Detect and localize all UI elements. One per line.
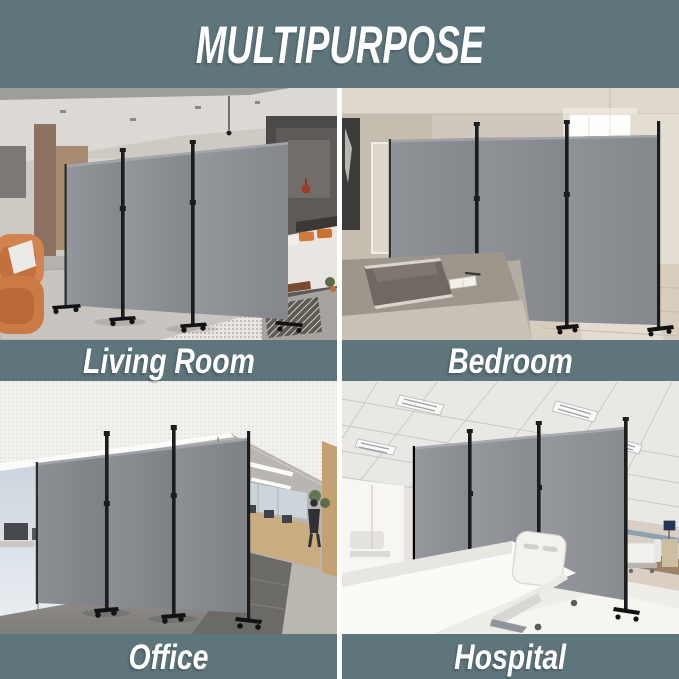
- office-photo: [0, 381, 337, 634]
- hospital-photo: [342, 381, 679, 634]
- label-bedroom: Bedroom: [448, 340, 573, 381]
- section-office: Office: [0, 381, 337, 679]
- section-hospital: Hospital: [337, 381, 679, 679]
- header-band: MULTIPURPOSE: [0, 0, 679, 88]
- product-collage: MULTIPURPOSE: [0, 0, 679, 679]
- plant: [325, 277, 335, 287]
- label-band-hospital: Hospital: [342, 634, 679, 679]
- red-vase: [302, 185, 311, 194]
- photo-grid: Living Room: [0, 88, 679, 679]
- section-living-room: Living Room: [0, 88, 337, 381]
- monitor: [664, 521, 675, 530]
- bed: [342, 252, 532, 340]
- label-band-office: Office: [0, 634, 337, 679]
- living-room-photo: [0, 88, 337, 340]
- room-divider: [52, 140, 303, 333]
- cabinet: [662, 539, 678, 567]
- label-band-bedroom: Bedroom: [342, 340, 679, 381]
- label-living-room: Living Room: [83, 340, 255, 381]
- bedroom-photo: [342, 88, 679, 340]
- orange-armchairs: [0, 234, 44, 334]
- page-title: MULTIPURPOSE: [195, 13, 484, 75]
- wood-wall: [322, 441, 337, 581]
- section-bedroom: Bedroom: [337, 88, 679, 381]
- label-hospital: Hospital: [455, 636, 567, 677]
- label-band-living-room: Living Room: [0, 340, 337, 381]
- wall-art: [342, 118, 360, 230]
- wall-panel: [0, 146, 26, 198]
- label-office: Office: [129, 636, 209, 677]
